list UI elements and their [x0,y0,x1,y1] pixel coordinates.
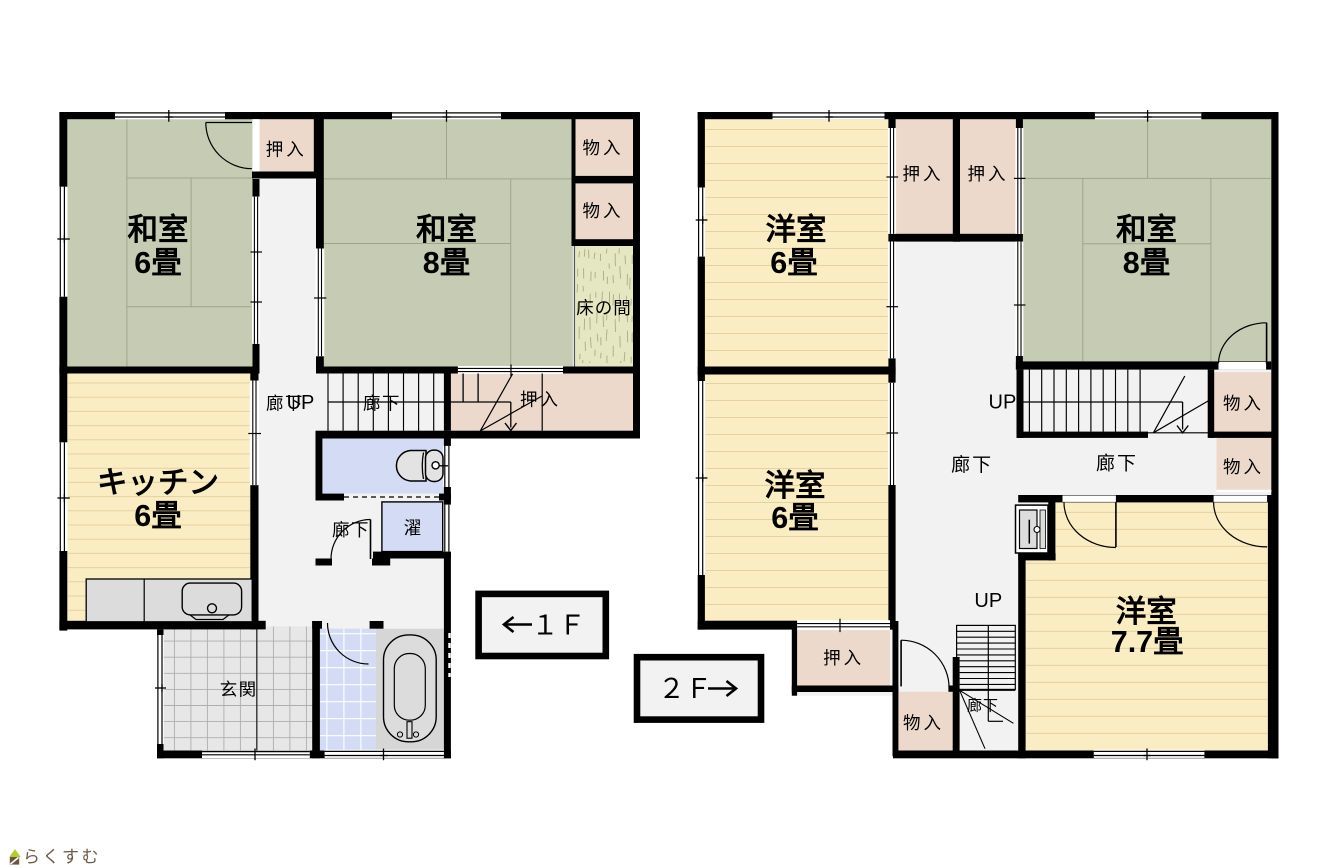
svg-text:和室: 和室 [416,212,477,247]
svg-text:UP: UP [989,392,1017,414]
svg-text:物入: 物入 [1223,457,1264,477]
svg-text:押入: 押入 [968,164,1009,184]
svg-text:8畳: 8畳 [423,246,470,280]
svg-text:廊下: 廊下 [967,698,999,715]
svg-text:洋室: 洋室 [1116,594,1177,629]
svg-text:押入: 押入 [903,164,944,184]
svg-text:物入: 物入 [583,201,624,221]
svg-text:押入: 押入 [266,140,307,160]
svg-text:物入: 物入 [903,713,944,733]
svg-text:6畳: 6畳 [134,499,181,533]
svg-text:廊下: 廊下 [332,520,370,540]
svg-text:6畳: 6畳 [134,246,181,280]
svg-text:床の間: 床の間 [576,298,632,318]
svg-text:6畳: 6畳 [770,246,817,280]
svg-text:洋室: 洋室 [765,468,826,503]
svg-text:キッチン: キッチン [97,466,219,500]
svg-text:物入: 物入 [583,138,624,158]
svg-text:7.7畳: 7.7畳 [1111,625,1184,659]
svg-text:らくすむ: らくすむ [23,848,101,867]
svg-text:6畳: 6畳 [771,501,818,535]
svg-text:和室: 和室 [1116,212,1177,247]
svg-text:洋室: 洋室 [766,212,827,247]
svg-text:UP: UP [974,590,1002,612]
svg-text:玄関: 玄関 [220,680,258,700]
svg-text:廊下: 廊下 [363,394,401,414]
svg-text:２Ｆ: ２Ｆ [658,674,712,704]
svg-text:和室: 和室 [128,212,189,247]
svg-text:１Ｆ: １Ｆ [532,611,586,641]
svg-text:UP: UP [287,392,315,414]
svg-text:8畳: 8畳 [1123,246,1170,280]
svg-text:押入: 押入 [823,648,864,668]
svg-text:廊下: 廊下 [951,454,993,476]
svg-text:濯: 濯 [404,518,422,538]
svg-text:物入: 物入 [1223,394,1264,414]
svg-text:押入: 押入 [520,390,561,410]
svg-text:廊下: 廊下 [1096,453,1138,475]
